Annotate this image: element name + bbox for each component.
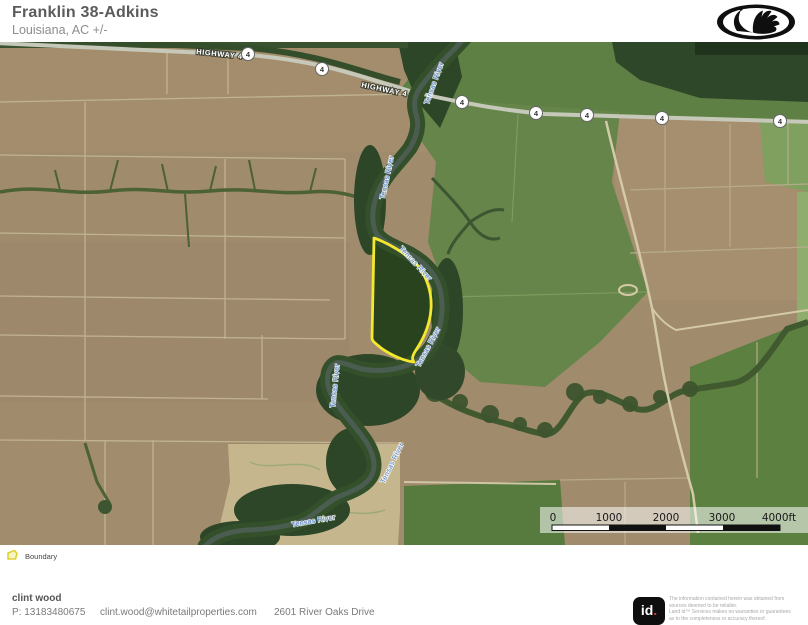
scale-bar-segment xyxy=(609,525,666,531)
land-id-logo: id. xyxy=(633,597,665,625)
legend-boundary-label: Boundary xyxy=(25,552,57,561)
route-badge: 4 xyxy=(656,112,669,125)
disclaimer-line: Land id™ Services makes no warranties or… xyxy=(669,609,807,616)
field-tone xyxy=(0,242,350,402)
page-title: Franklin 38-Adkins xyxy=(12,4,159,22)
whitetail-antler-logo-icon xyxy=(716,3,796,41)
scale-bar: 0 1000 2000 3000 4000ft xyxy=(540,507,808,533)
boundary-swatch-icon xyxy=(6,549,19,561)
aerial-map-canvas: HIGHWAY 4 HIGHWAY 4 4 4 4 4 4 4 4 Tensas… xyxy=(0,42,808,545)
route-badge: 4 xyxy=(530,107,543,120)
scale-tick: 0 xyxy=(550,512,557,524)
route-badge: 4 xyxy=(316,63,329,76)
page-subtitle: Louisiana, AC +/- xyxy=(12,23,108,37)
disclaimer: The information contained herein was obt… xyxy=(669,596,807,622)
agent-email: clint.wood@whitetailproperties.com xyxy=(100,607,257,618)
disclaimer-line: sources deemed to be reliable. xyxy=(669,603,807,610)
scale-bar-segment xyxy=(723,525,780,531)
report-header: Franklin 38-Adkins Louisiana, AC +/- xyxy=(0,0,808,42)
disclaimer-line: as to the completeness or accuracy there… xyxy=(669,616,807,623)
agent-phone: P: 13183480675 xyxy=(12,607,85,618)
route-badge: 4 xyxy=(242,48,255,61)
forest-top-edge xyxy=(695,42,808,55)
field-tone xyxy=(0,42,430,152)
route-badge: 4 xyxy=(581,109,594,122)
disclaimer-line: The information contained herein was obt… xyxy=(669,596,807,603)
route-badge: 4 xyxy=(456,96,469,109)
scale-tick: 2000 xyxy=(653,512,680,524)
land-id-logo-dot: . xyxy=(653,602,657,618)
route-badge: 4 xyxy=(774,115,787,128)
scale-tick: 4000ft xyxy=(762,512,796,524)
tree-clump xyxy=(98,500,112,514)
scale-tick: 3000 xyxy=(709,512,736,524)
agent-name: clint wood xyxy=(12,593,61,604)
aerial-map: HIGHWAY 4 HIGHWAY 4 4 4 4 4 4 4 4 Tensas… xyxy=(0,42,808,545)
agent-address: 2601 River Oaks Drive xyxy=(274,607,375,618)
scale-tick: 1000 xyxy=(596,512,623,524)
legend: Boundary xyxy=(0,545,808,571)
land-id-logo-text: id xyxy=(641,602,653,618)
green-patch-east xyxy=(760,122,808,192)
field-tone xyxy=(0,438,230,545)
